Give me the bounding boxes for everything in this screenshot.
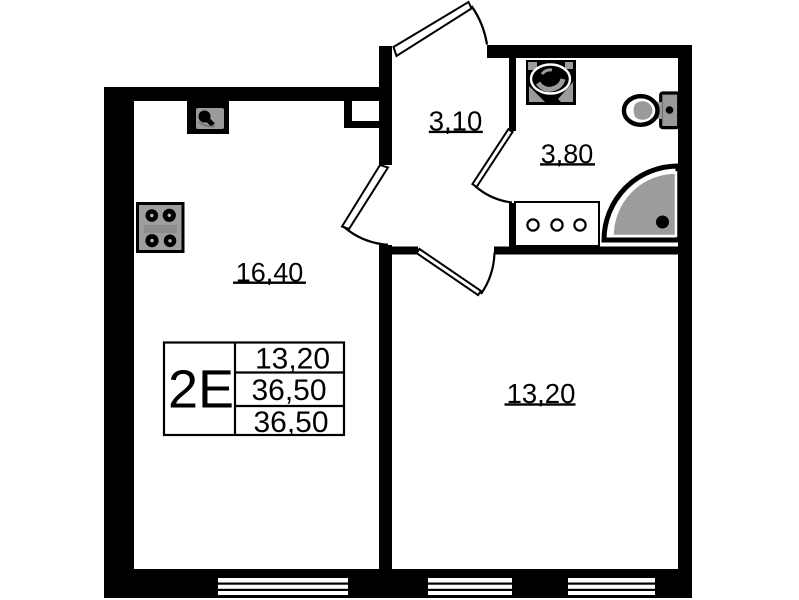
svg-text:2E: 2E <box>168 360 234 420</box>
svg-text:13,20: 13,20 <box>255 343 330 376</box>
svg-text:36,50: 36,50 <box>251 374 326 407</box>
svg-text:36,50: 36,50 <box>253 406 328 439</box>
